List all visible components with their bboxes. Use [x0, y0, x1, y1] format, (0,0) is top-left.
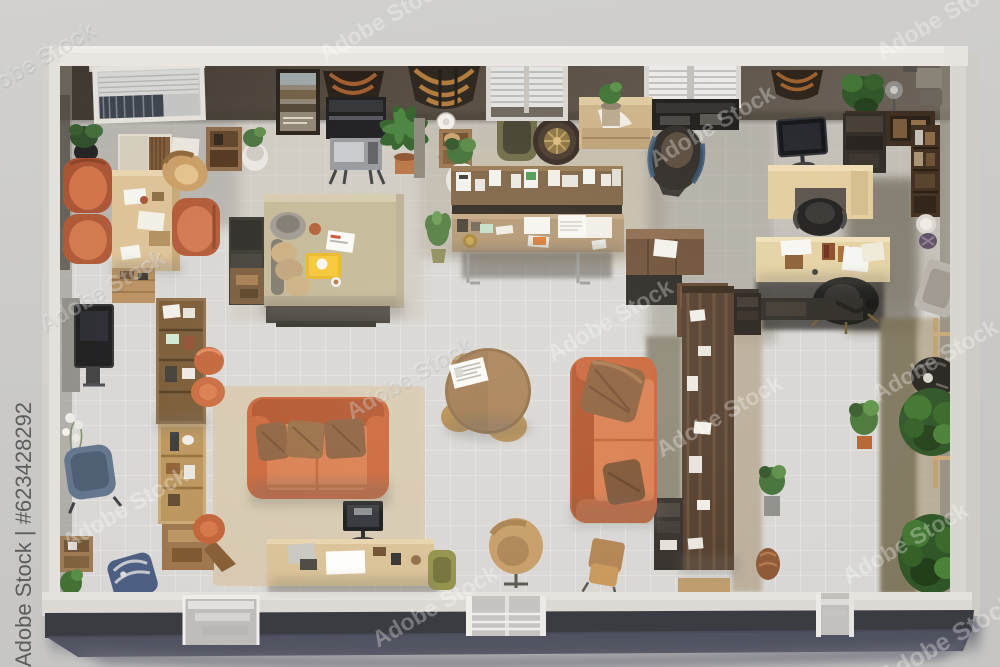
- svg-text:Adobe Stock | #623428292: Adobe Stock | #623428292: [11, 402, 36, 667]
